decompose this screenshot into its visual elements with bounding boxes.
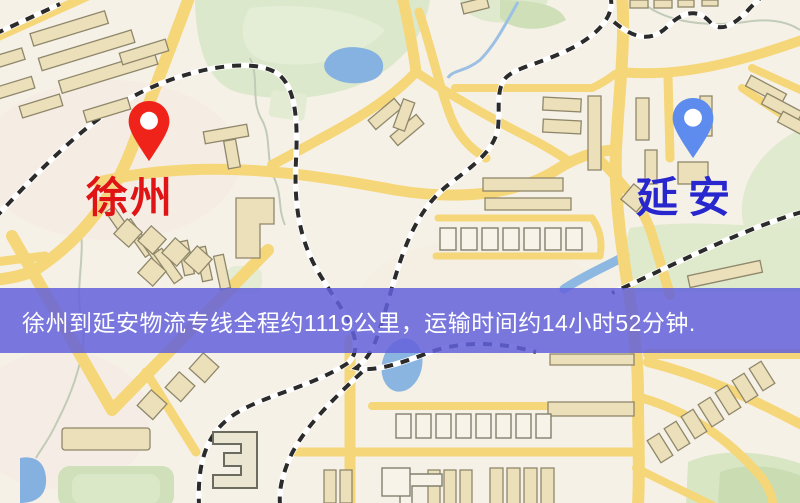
route-info-text: 徐州到延安物流专线全程约1119公里，运输时间约14小时52分钟. (0, 304, 696, 338)
map-canvas (0, 0, 800, 503)
origin-city-label: 徐州 (86, 178, 174, 220)
origin-pin-icon (125, 99, 173, 165)
map-image: 徐州 延安 徐州到延安物流专线全程约1119公里，运输时间约14小时52分钟. (0, 0, 800, 503)
destination-pin-icon (669, 96, 717, 162)
destination-city-label: 延安 (636, 178, 740, 220)
info-banner: 徐州到延安物流专线全程约1119公里，运输时间约14小时52分钟. (0, 288, 800, 353)
